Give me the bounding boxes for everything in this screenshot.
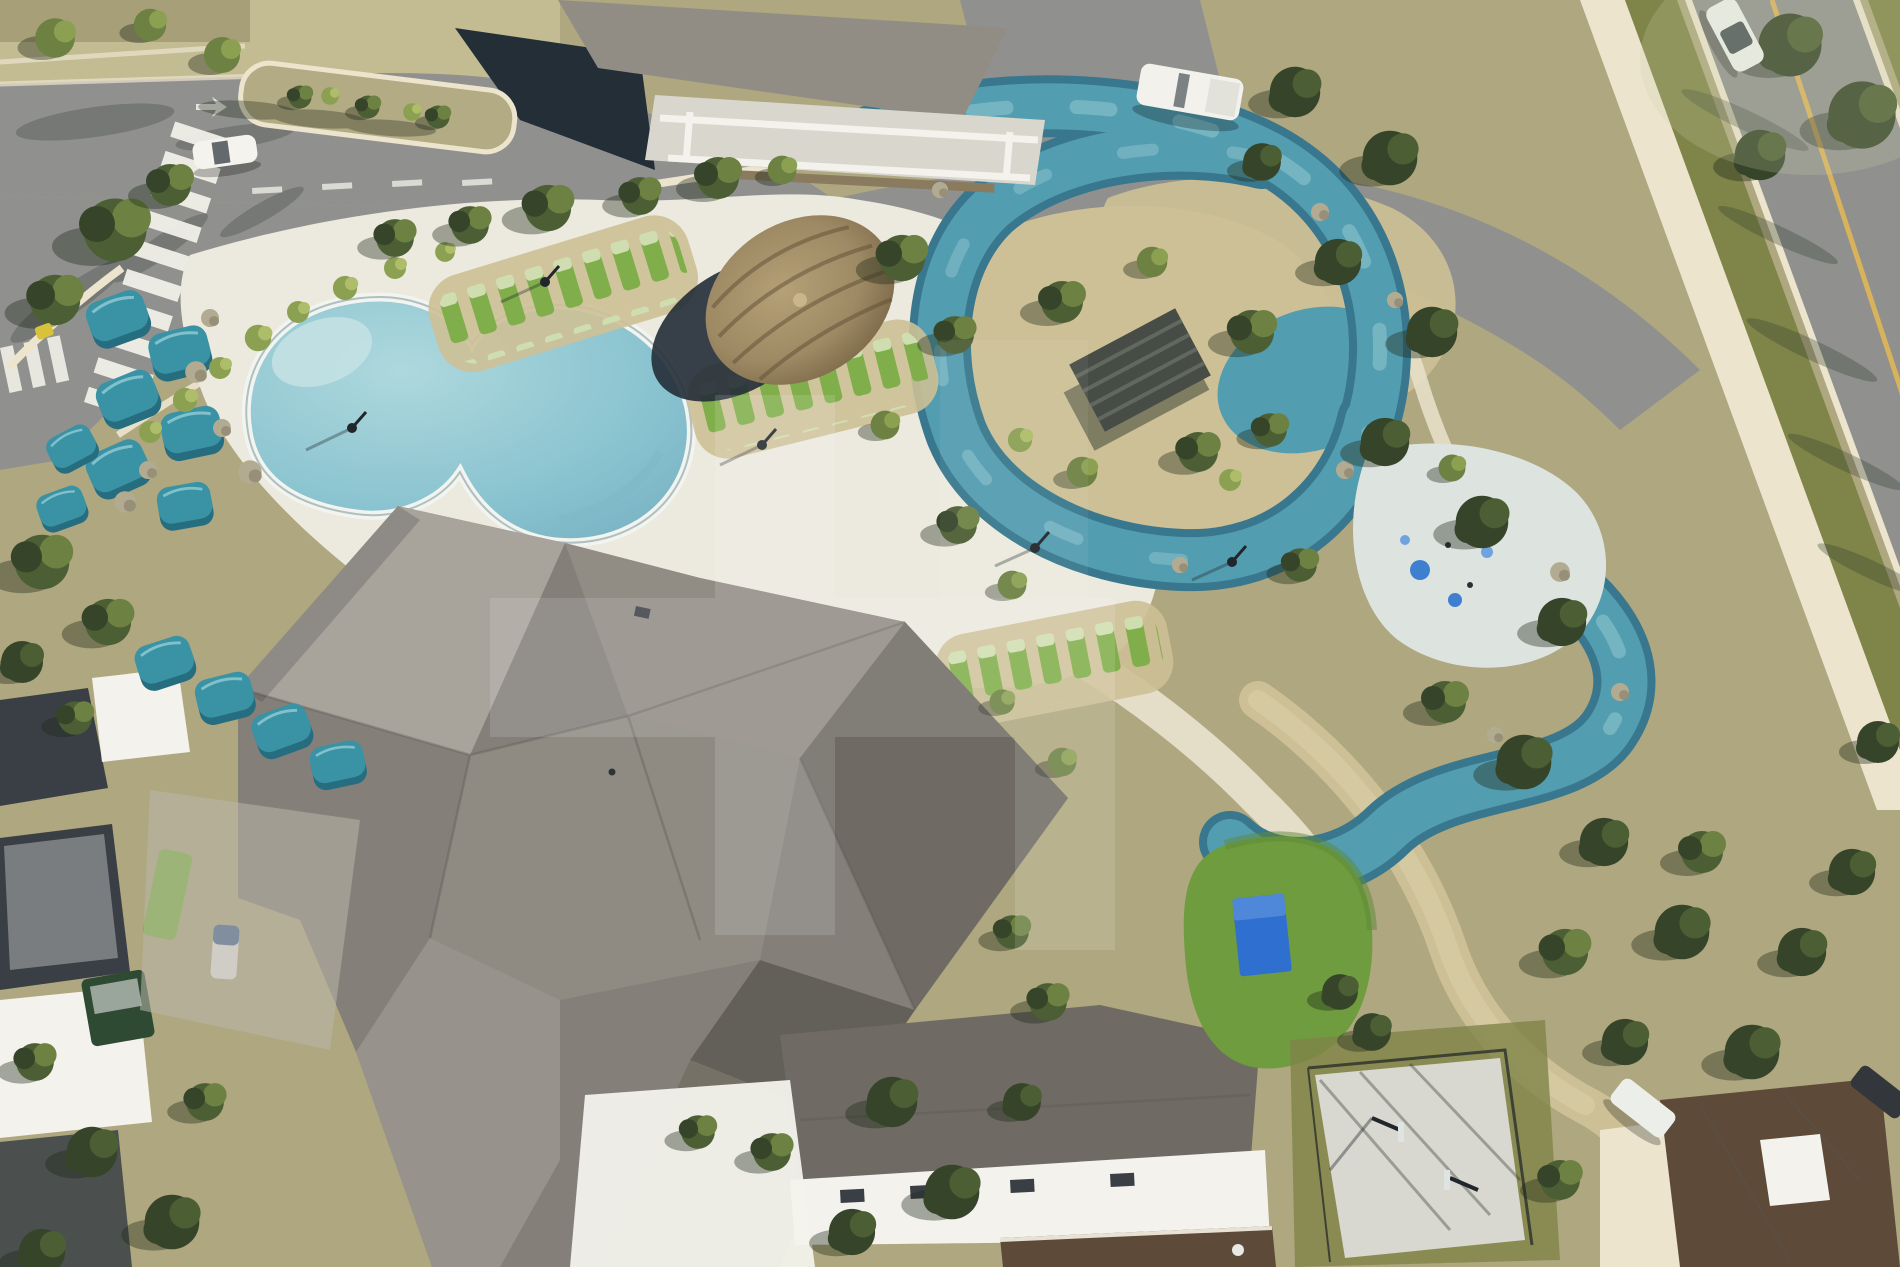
screenshot-root: Aerial drone photo of a community amenit… (0, 0, 1900, 1267)
home-bottom-right (1599, 1063, 1900, 1267)
watermark-faint-bar (940, 340, 1088, 598)
aerial-photo: Aerial drone photo of a community amenit… (0, 0, 1900, 1267)
basketball-court (1315, 1058, 1525, 1258)
courtyard (570, 1080, 815, 1267)
satellite-dish (1232, 1244, 1244, 1256)
game-mat (1232, 893, 1292, 976)
splash-spot (1410, 560, 1430, 580)
